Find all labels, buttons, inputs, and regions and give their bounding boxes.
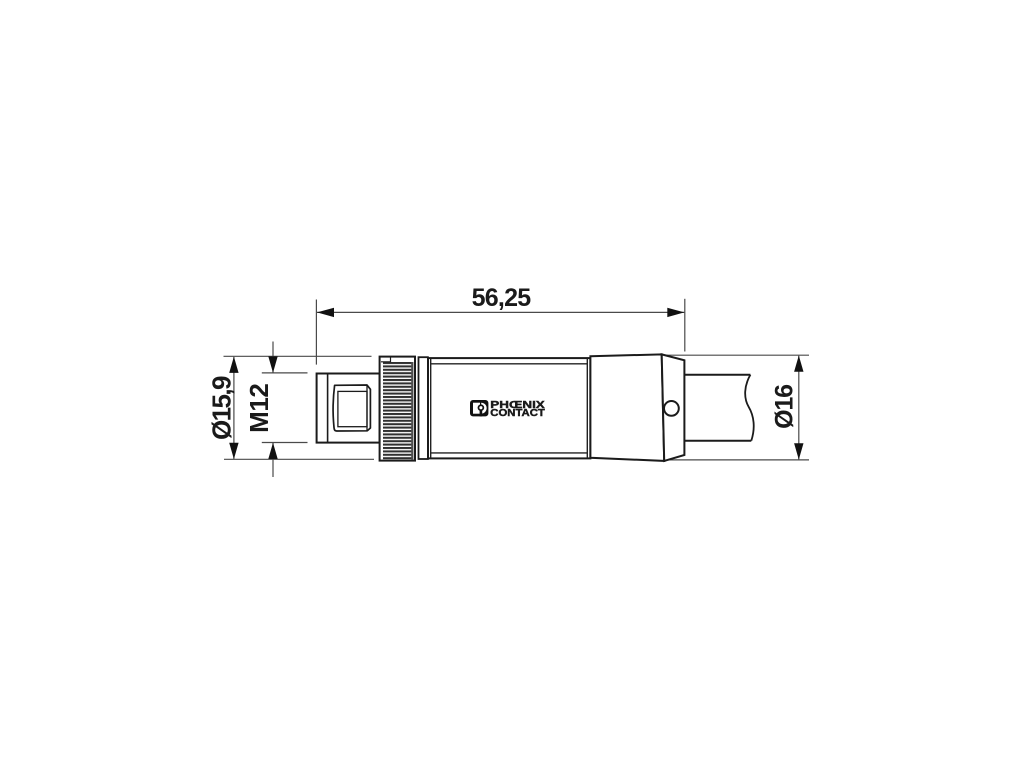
svg-text:CONTACT: CONTACT <box>490 407 545 419</box>
svg-text:Ø15,9: Ø15,9 <box>206 376 236 440</box>
svg-text:Ø16: Ø16 <box>771 385 799 429</box>
svg-text:M12: M12 <box>244 384 274 433</box>
svg-text:56,25: 56,25 <box>472 284 532 312</box>
